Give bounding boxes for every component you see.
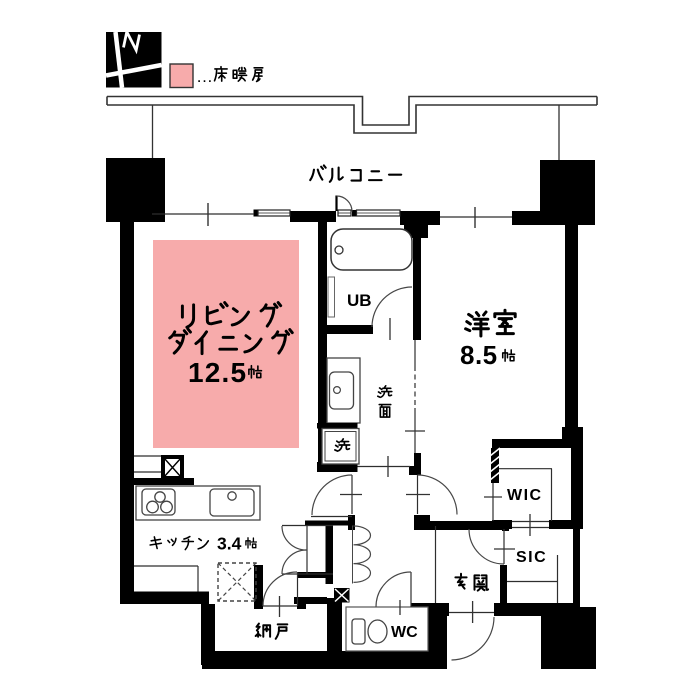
svg-text:SIC: SIC — [516, 549, 547, 566]
svg-text:12.5: 12.5 — [188, 357, 247, 388]
svg-text:WC: WC — [391, 624, 418, 641]
svg-text:…: … — [196, 67, 213, 86]
svg-text:3.4: 3.4 — [217, 534, 242, 554]
svg-text:UB: UB — [347, 291, 372, 310]
svg-text:WIC: WIC — [507, 487, 543, 504]
svg-text:8.5: 8.5 — [460, 340, 498, 370]
